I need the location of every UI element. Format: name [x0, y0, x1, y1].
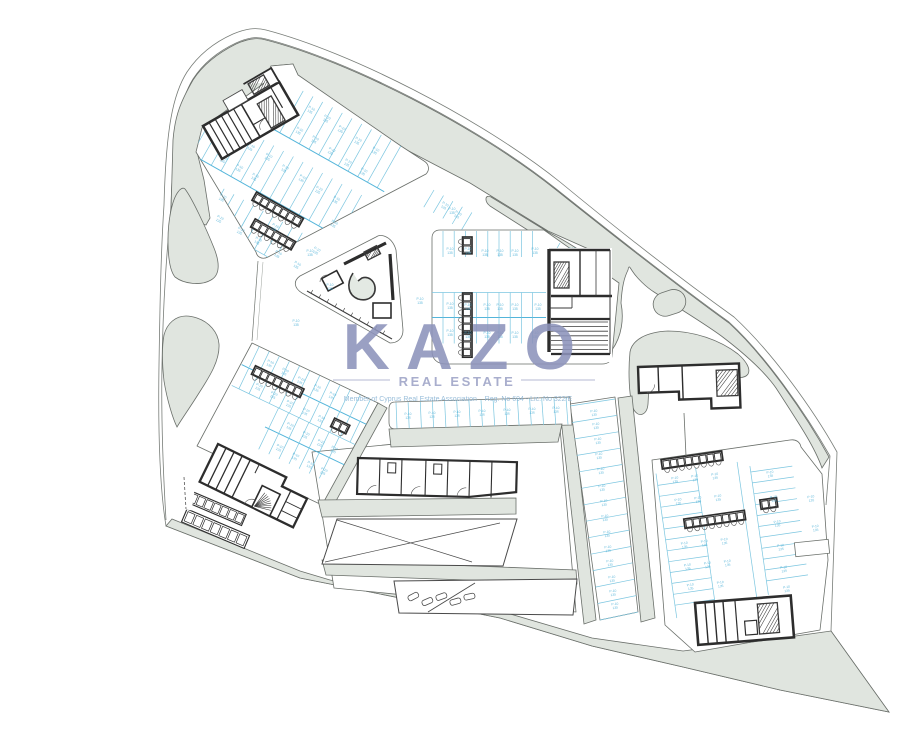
svg-text:135: 135 [612, 605, 618, 610]
svg-text:135: 135 [449, 211, 455, 215]
svg-text:135: 135 [672, 479, 678, 484]
svg-text:135: 135 [479, 413, 485, 417]
svg-text:135: 135 [599, 487, 605, 492]
svg-text:135: 135 [725, 563, 731, 568]
svg-text:135: 135 [447, 251, 453, 255]
svg-text:135: 135 [688, 586, 694, 591]
svg-text:135: 135 [705, 565, 711, 570]
svg-text:135: 135 [327, 287, 333, 291]
svg-text:135: 135 [808, 498, 814, 503]
svg-text:135: 135 [482, 253, 488, 257]
svg-text:135: 135 [695, 499, 701, 504]
svg-text:135: 135 [781, 569, 787, 574]
svg-text:135: 135 [307, 253, 313, 257]
svg-text:135: 135 [417, 301, 423, 305]
svg-text:135: 135 [465, 251, 471, 255]
svg-text:135: 135 [598, 470, 604, 475]
svg-text:135: 135 [675, 501, 681, 506]
svg-text:135: 135 [715, 497, 721, 502]
svg-text:135: 135 [596, 455, 602, 460]
svg-text:135: 135 [529, 411, 535, 415]
svg-text:Member of Cyprus Real Estate A: Member of Cyprus Real Estate Association… [344, 396, 573, 403]
svg-text:135: 135 [775, 523, 781, 528]
svg-text:135: 135 [692, 477, 698, 482]
svg-text:135: 135 [609, 578, 615, 583]
svg-text:135: 135 [767, 474, 773, 479]
svg-text:135: 135 [610, 592, 616, 597]
svg-text:135: 135 [605, 548, 611, 553]
svg-text:135: 135 [813, 528, 819, 533]
svg-text:135: 135 [722, 541, 728, 546]
svg-text:135: 135 [685, 566, 691, 571]
svg-text:135: 135 [778, 547, 784, 552]
svg-text:135: 135 [591, 412, 597, 417]
svg-text:135: 135 [512, 253, 518, 257]
svg-text:135: 135 [718, 584, 724, 589]
svg-text:135: 135 [293, 323, 299, 327]
svg-text:KAZO: KAZO [343, 310, 591, 383]
svg-text:135: 135 [601, 502, 607, 507]
svg-text:135: 135 [497, 253, 503, 257]
svg-text:135: 135 [532, 251, 538, 255]
svg-text:135: 135 [682, 545, 688, 550]
svg-text:135: 135 [595, 440, 601, 445]
svg-text:135: 135 [604, 533, 610, 538]
svg-text:135: 135 [593, 425, 599, 430]
svg-text:135: 135 [771, 498, 777, 503]
svg-text:135: 135 [429, 415, 435, 419]
svg-text:135: 135 [553, 410, 559, 414]
svg-text:REAL ESTATE: REAL ESTATE [399, 374, 516, 389]
svg-text:135: 135 [602, 517, 608, 522]
svg-text:135: 135 [405, 416, 411, 420]
svg-text:135: 135 [607, 562, 613, 567]
svg-text:135: 135 [504, 412, 510, 416]
svg-text:135: 135 [702, 543, 708, 548]
svg-text:135: 135 [784, 588, 790, 593]
svg-text:135: 135 [712, 476, 718, 481]
svg-text:135: 135 [454, 414, 460, 418]
